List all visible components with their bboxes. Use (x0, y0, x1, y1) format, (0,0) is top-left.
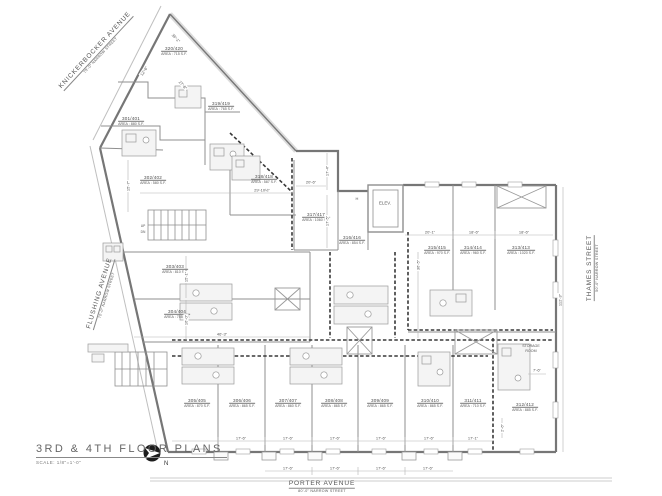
elevator-shaft (368, 185, 403, 232)
street-name: THAMES STREET (586, 235, 593, 301)
dimension-label: 17'-6" (235, 436, 247, 441)
dimension-label: 29'-10½" (253, 188, 271, 193)
street-note: 50'-0" NARROW STREET (593, 235, 598, 301)
unit-area: AREA : 1020 S.F. (507, 251, 535, 255)
unit-area: AREA : 710 S.F. (460, 404, 486, 408)
sheet-scale: SCALE: 1/8"=1'-0" (36, 460, 227, 465)
dimension-label: 17'-6" (422, 466, 434, 471)
unit-area: AREA : 970 S.F. (424, 251, 450, 255)
street-label-porter: PORTER AVENUE 80'-0" NARROW STREET (289, 480, 355, 493)
unit-label: 319/419AREA : 765 S.F. (208, 101, 234, 111)
unit-label: 310/410AREA : 865 S.F. (417, 398, 443, 408)
dimension-label: 20'-1" (424, 230, 436, 235)
floor-plan-sheet: 320/420AREA : 715 S.F. 301/401AREA : 880… (0, 0, 662, 496)
stair-up-label: UP (141, 225, 146, 229)
unit-area: AREA : 865 S.F. (229, 404, 255, 408)
unit-area: AREA : 870 S.F. (184, 404, 210, 408)
dimension-label: 7'-6" (532, 368, 542, 373)
dimension-label: 18'-6" (468, 230, 480, 235)
unit-area: AREA : 860 S.F. (275, 404, 301, 408)
dimension-label: 17'-6" (282, 436, 294, 441)
unit-area: AREA : 885 S.F. (512, 408, 538, 412)
unit-label: 318/418AREA : 587 S.F. (251, 174, 277, 184)
unit-area: AREA : 865 S.F. (417, 404, 443, 408)
dimension-label: 20'-6" (305, 180, 317, 185)
street-name: PORTER AVENUE (289, 480, 355, 487)
unit-label: 305/405AREA : 870 S.F. (184, 398, 210, 408)
unit-area: AREA : 960 S.F. (460, 251, 486, 255)
unit-label: 320/420AREA : 715 S.F. (161, 46, 187, 56)
street-note: 80'-0" NARROW STREET (289, 487, 355, 492)
dimension-label: 112'-3" (558, 293, 563, 307)
dimension-label: 18'-6" (518, 230, 530, 235)
dimension-label: 17'-6" (375, 436, 387, 441)
unit-area: AREA : 854 S.F. (339, 241, 365, 245)
title-block: 3RD & 4TH FLOOR PLANS SCALE: 1/8"=1'-0" (36, 443, 227, 465)
unit-area: AREA : 580 S.F. (140, 181, 166, 185)
dimension-label: 17'-6" (329, 466, 341, 471)
unit-label: 311/411AREA : 710 S.F. (460, 398, 486, 408)
unit-label: 306/406AREA : 865 S.F. (229, 398, 255, 408)
dimension-label: 17'-4" (325, 165, 330, 177)
unit-label: 308/408AREA : 865 S.F. (321, 398, 347, 408)
dimension-label: 36'-5" (416, 259, 421, 271)
dimension-label: 2'-6" (500, 423, 505, 433)
unit-area: AREA : 865 S.F. (321, 404, 347, 408)
unit-area: AREA : 715 S.F. (161, 52, 187, 56)
unit-label: 309/409AREA : 865 S.F. (367, 398, 393, 408)
unit-area: AREA : 865 S.F. (367, 404, 393, 408)
unit-area: AREA : 765 S.F. (208, 107, 234, 111)
unit-label: 301/401AREA : 880 S.F. (118, 116, 144, 126)
unit-label: 315/415AREA : 970 S.F. (424, 245, 450, 255)
floor-plan-drawing (0, 0, 662, 496)
elevator-label: ELEV. (379, 202, 391, 207)
storage-room-label2: ROOM (525, 350, 536, 354)
sheet-title: 3RD & 4TH FLOOR PLANS (36, 443, 227, 458)
party-wall (170, 14, 296, 151)
unit-label: 302/402AREA : 580 S.F. (140, 175, 166, 185)
dimension-label: 15'-1" (184, 271, 189, 283)
unit-label: 307/407AREA : 860 S.F. (275, 398, 301, 408)
unit-area: AREA : 880 S.F. (118, 122, 144, 126)
dimension-label: 16'-0" (184, 314, 189, 326)
dimension-label: 15'-7" (126, 180, 131, 192)
unit-label: 312/412AREA : 885 S.F. (512, 402, 538, 412)
dimension-label: 17'-1" (467, 436, 479, 441)
dimension-label: 17'-6" (329, 436, 341, 441)
stair-dn-label: DN (141, 231, 146, 235)
street-label-thames: THAMES STREET 50'-0" NARROW STREET (586, 235, 599, 301)
unit-label: 314/414AREA : 960 S.F. (460, 245, 486, 255)
unit-label: 316/416AREA : 854 S.F. (339, 235, 365, 245)
dimension-label: 46'-3" (216, 332, 228, 337)
north-label: N (164, 461, 168, 467)
dimension-label: 17'-6" (282, 466, 294, 471)
dimension-label: 17'-5" (325, 215, 330, 227)
unit-area: AREA : 587 S.F. (251, 180, 277, 184)
dimension-label: 17'-6" (423, 436, 435, 441)
unit-label: 313/413AREA : 1020 S.F. (507, 245, 535, 255)
dimension-label: 17'-6" (375, 466, 387, 471)
hall-tag: H (356, 197, 359, 201)
